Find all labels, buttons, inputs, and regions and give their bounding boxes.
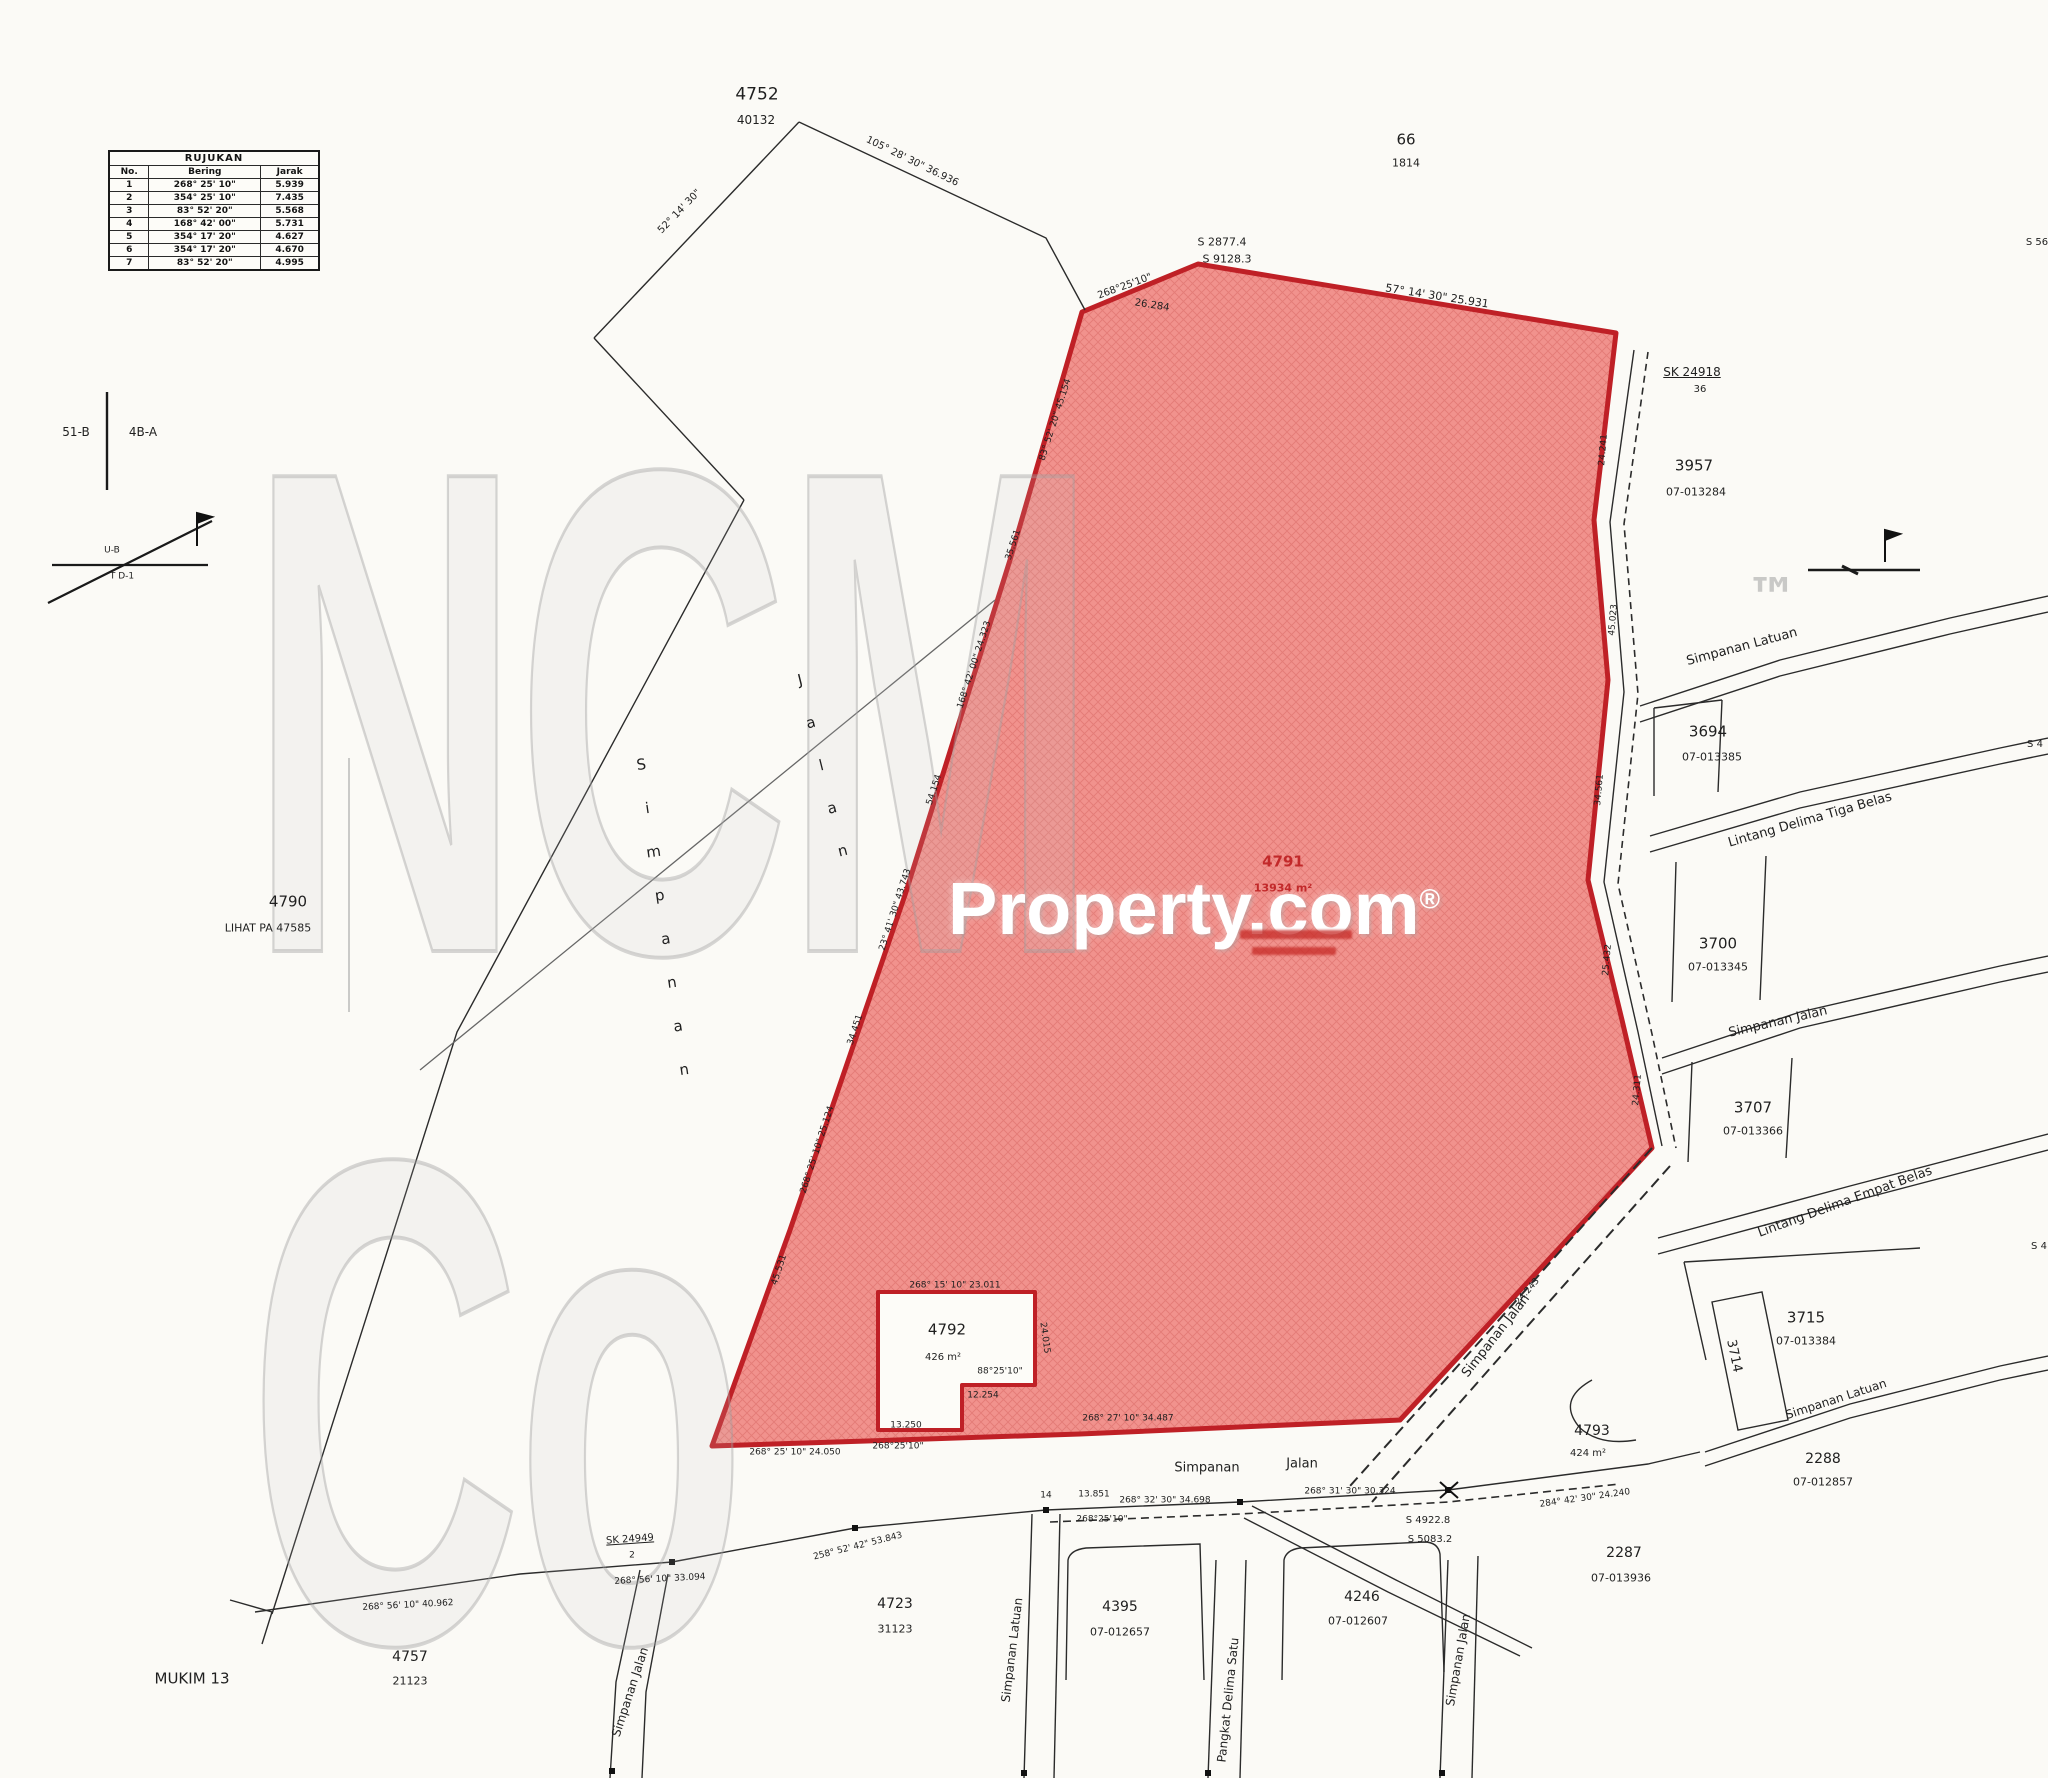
- datum-s2877: S 2877.4: [1198, 237, 1247, 248]
- lot-4793: 4793: [1574, 1424, 1610, 1438]
- mukim-13: MUKIM 13: [155, 1672, 230, 1687]
- lot-2288-ref: 07-012857: [1793, 1477, 1853, 1488]
- lot-4246: 4246: [1344, 1590, 1380, 1604]
- reference-table-headers: No.BeringJarak: [109, 166, 319, 179]
- lot-4395-ref: 07-012657: [1090, 1627, 1150, 1638]
- section-ub: U-B: [104, 547, 120, 556]
- lot-66: 66: [1396, 133, 1415, 148]
- reference-table-title: RUJUKAN: [109, 151, 319, 166]
- lot-4246-ref: 07-012607: [1328, 1616, 1388, 1627]
- wm-tm: ™: [1746, 572, 1798, 624]
- section-51b: 51-B: [62, 426, 89, 438]
- lot-4792: 4792: [928, 1323, 966, 1338]
- parcel-annotation-line-2: [1252, 947, 1336, 955]
- table-header: Jarak: [261, 166, 319, 179]
- lot-3700-ref: 07-013345: [1688, 962, 1748, 973]
- bearing-road-268: 268°25'10": [1076, 1516, 1127, 1525]
- dim-road-14: 14: [1040, 1492, 1051, 1501]
- section-symbols: [48, 392, 1920, 603]
- bearing-4792-top: 268° 15' 10" 23.011: [909, 1282, 1000, 1291]
- table-row: 1268° 25' 10"5.939: [109, 179, 319, 192]
- lot-4723-ref: 31123: [878, 1624, 913, 1635]
- bearing-bottom-left: 268° 25' 10" 24.050: [749, 1449, 840, 1458]
- table-row: 783° 52' 20"4.995: [109, 257, 319, 271]
- lot-4791-area: 13934 m²: [1254, 883, 1312, 894]
- survey-nodes: [609, 1482, 1458, 1776]
- lot-4757: 4757: [392, 1650, 428, 1664]
- lot-2287: 2287: [1606, 1546, 1642, 1560]
- lot-3707: 3707: [1734, 1101, 1772, 1116]
- bearing-road-34698: 268° 32' 30" 34.698: [1119, 1497, 1210, 1506]
- edge-label-s4-a: S 4: [2027, 740, 2043, 750]
- lot-3707-ref: 07-013366: [1723, 1126, 1783, 1137]
- edge-label-s4-b: S 4: [2031, 1242, 2047, 1252]
- lot-3957-ref: 07-013284: [1666, 487, 1726, 498]
- table-header: No.: [109, 166, 149, 179]
- reference-table: RUJUKAN No.BeringJarak 1268° 25' 10"5.93…: [108, 150, 320, 271]
- table-row: 2354° 25' 10"7.435: [109, 192, 319, 205]
- lot-66-ref: 1814: [1392, 158, 1420, 169]
- lot-4752-ref: 40132: [737, 114, 775, 126]
- lot-3700: 3700: [1699, 937, 1737, 952]
- table-row: 4168° 42' 00"5.731: [109, 218, 319, 231]
- lot-4395: 4395: [1102, 1600, 1138, 1614]
- road-simpanan-bottom: Simpanan: [1174, 1462, 1239, 1475]
- lot-4790: 4790: [269, 895, 307, 910]
- reference-table-body: 1268° 25' 10"5.9392354° 25' 10"7.435383°…: [109, 179, 319, 271]
- lot-4723: 4723: [877, 1597, 913, 1611]
- lot-3694-ref: 07-013385: [1682, 752, 1742, 763]
- section-td1: T D-1: [110, 573, 134, 582]
- lot-3715-ref: 07-013384: [1776, 1336, 1836, 1347]
- table-header: Bering: [149, 166, 261, 179]
- lot-2288: 2288: [1805, 1452, 1841, 1466]
- flag-marker-right: [1885, 530, 1900, 562]
- dim-road-13851: 13.851: [1078, 1491, 1110, 1500]
- table-row: 383° 52' 20"5.568: [109, 205, 319, 218]
- lot-4792-area: 426 m²: [925, 1353, 961, 1363]
- dim-4792-13250: 13.250: [890, 1422, 922, 1431]
- bearing-bottom-mid: 268° 27' 10" 34.487: [1082, 1415, 1173, 1424]
- bearing-4792-88: 88°25'10": [977, 1368, 1022, 1377]
- lot-4757-ref: 21123: [393, 1676, 428, 1687]
- dim-4792-12254: 12.254: [967, 1392, 999, 1401]
- section-4ba: 4B-A: [129, 426, 157, 438]
- table-row: 6354° 17' 20"4.670: [109, 244, 319, 257]
- parcel-annotation-line-1: [1240, 930, 1352, 939]
- edge-label-s56: S 56: [2026, 238, 2048, 248]
- bearing-4792-268: 268°25'10": [872, 1443, 923, 1452]
- datum-s4922: S 4922.8: [1406, 1516, 1451, 1526]
- mark-sk24949-b: 2: [629, 1552, 635, 1561]
- lot-4791: 4791: [1262, 855, 1304, 870]
- road-jalan-bottom: Jalan: [1286, 1458, 1318, 1471]
- flag-marker-left: [197, 513, 212, 546]
- datum-s5083: S 5083.2: [1408, 1535, 1453, 1545]
- lot-3957: 3957: [1675, 459, 1713, 474]
- lot-4790-note: LIHAT PA 47585: [225, 923, 311, 934]
- mark-sk24918-b: 36: [1694, 385, 1707, 395]
- registered-mark: ®: [1420, 883, 1441, 914]
- survey-map-page: RUJUKAN No.BeringJarak 1268° 25' 10"5.93…: [0, 0, 2048, 1778]
- lot-3694: 3694: [1689, 725, 1727, 740]
- mark-sk24918: SK 24918: [1663, 366, 1720, 378]
- lot-2287-ref: 07-013936: [1591, 1573, 1651, 1584]
- property-watermark: Property.com®: [948, 872, 1440, 946]
- lot-4793-area: 424 m²: [1570, 1449, 1606, 1459]
- datum-s9128: S 9128.3: [1203, 254, 1252, 265]
- lot-3715: 3715: [1787, 1311, 1825, 1326]
- table-row: 5354° 17' 20"4.627: [109, 231, 319, 244]
- lot-4752: 4752: [735, 87, 778, 104]
- bearing-road-30324: 268° 31' 30" 30.324: [1304, 1488, 1395, 1497]
